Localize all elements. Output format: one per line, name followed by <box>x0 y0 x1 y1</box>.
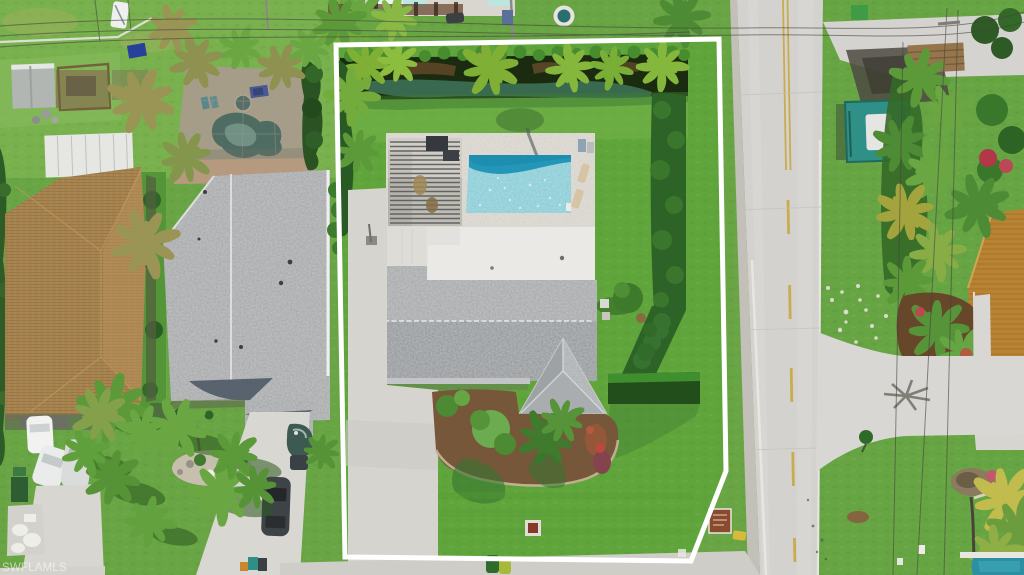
svg-text:SWFLAMLS: SWFLAMLS <box>2 562 67 574</box>
